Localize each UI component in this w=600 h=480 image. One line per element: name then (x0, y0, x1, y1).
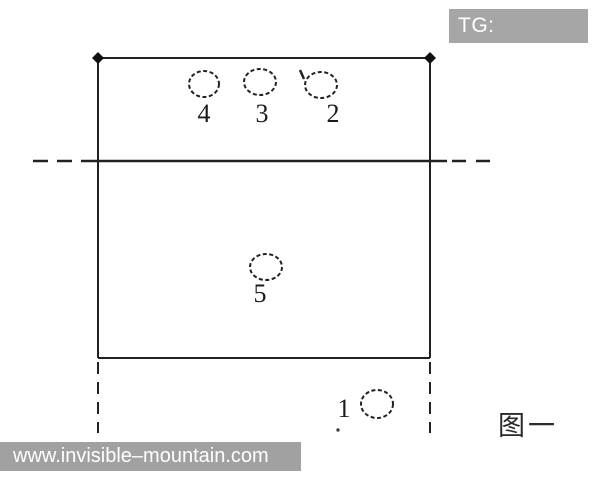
spot-3-label: 3 (256, 99, 269, 128)
spot-4-ellipse (189, 71, 219, 97)
site-watermark-bar: www.invisible–mountain.com (0, 442, 301, 471)
corner-dot-left (92, 52, 104, 64)
corner-dot-right (424, 52, 436, 64)
spot-1-ellipse (361, 390, 393, 418)
tick-mark-near-spot-2 (300, 70, 304, 79)
spot-2-ellipse (305, 72, 337, 98)
spot-2-label: 2 (327, 99, 340, 128)
tg-watermark-badge: TG: MYYJJPP (449, 9, 588, 43)
spot-4-label: 4 (198, 99, 211, 128)
spot-5-ellipse (250, 254, 282, 280)
sample-spots (189, 69, 393, 418)
spot-5-label: 5 (254, 279, 267, 308)
figure-page: 4 3 2 5 1 TG: MYYJJPP 图一 www.invisible–m… (0, 0, 600, 480)
spot-labels: 4 3 2 5 1 (198, 99, 351, 423)
ink-speck (336, 428, 339, 431)
spot-1-label: 1 (338, 394, 351, 423)
figure-caption: 图一 (498, 404, 558, 443)
spot-3-ellipse (244, 69, 276, 95)
baseline-extensions (98, 362, 430, 433)
